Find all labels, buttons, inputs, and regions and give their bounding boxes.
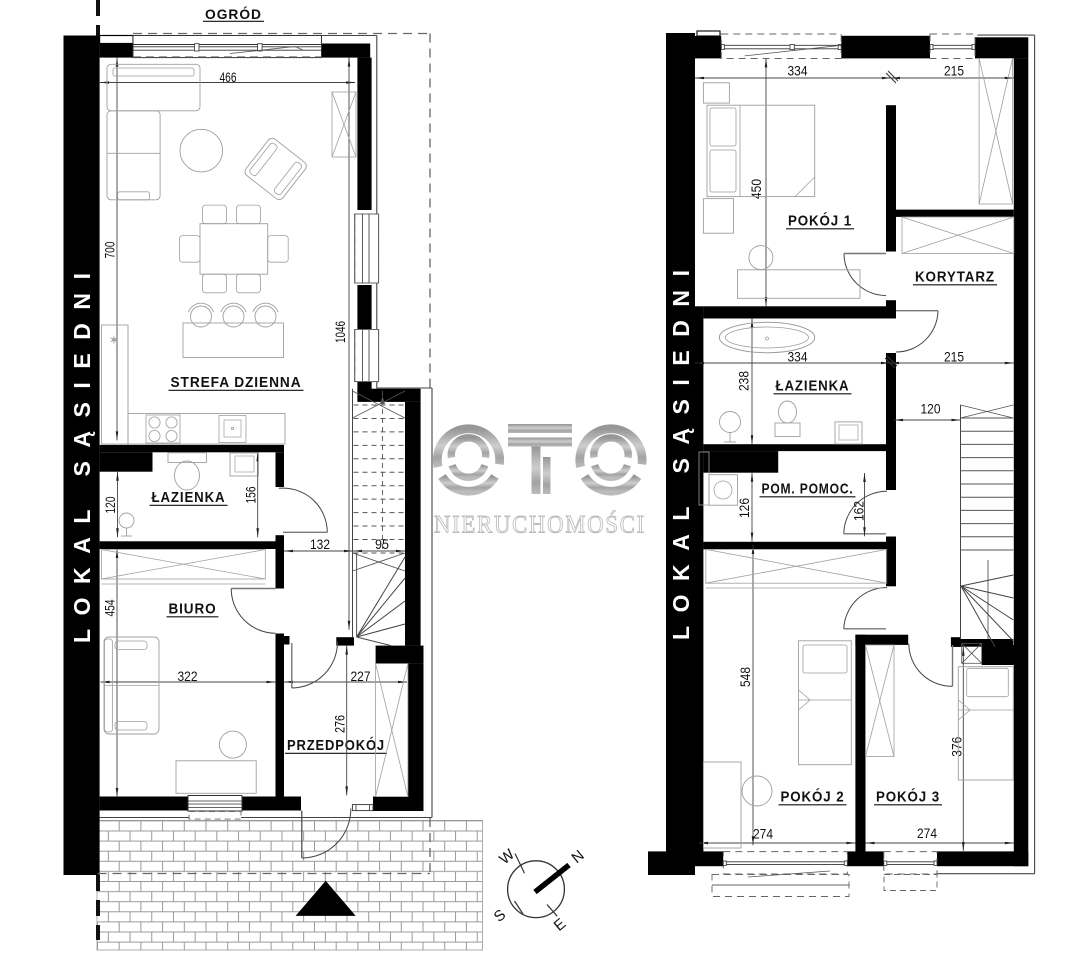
svg-text:454: 454 — [103, 599, 118, 616]
svg-text:162: 162 — [852, 501, 867, 521]
svg-text:95: 95 — [375, 537, 389, 552]
svg-text:132: 132 — [310, 537, 330, 552]
svg-text:466: 466 — [220, 70, 237, 85]
svg-text:POKÓJ 3: POKÓJ 3 — [876, 788, 940, 806]
svg-text:156: 156 — [244, 487, 259, 504]
svg-text:PRZEDPOKÓJ: PRZEDPOKÓJ — [287, 736, 385, 754]
svg-text:ŁAZIENKA: ŁAZIENKA — [776, 378, 850, 395]
svg-text:276: 276 — [333, 715, 348, 733]
svg-text:322: 322 — [178, 669, 198, 684]
svg-text:227: 227 — [351, 669, 371, 684]
svg-text:334: 334 — [788, 350, 808, 365]
svg-text:548: 548 — [738, 667, 753, 687]
svg-text:BIURO: BIURO — [169, 601, 217, 618]
svg-text:274: 274 — [917, 826, 937, 841]
svg-text:✶: ✶ — [109, 333, 120, 348]
svg-text:ŁAZIENKA: ŁAZIENKA — [152, 489, 226, 506]
svg-text:KORYTARZ: KORYTARZ — [915, 269, 995, 286]
svg-text:376: 376 — [950, 737, 965, 757]
svg-text:274: 274 — [753, 827, 773, 842]
svg-text:POKÓJ 1: POKÓJ 1 — [788, 212, 852, 230]
svg-text:334: 334 — [788, 64, 808, 79]
svg-text:120: 120 — [921, 402, 941, 417]
svg-text:700: 700 — [103, 242, 118, 259]
svg-text:120: 120 — [103, 497, 118, 514]
svg-text:STREFA DZIENNA: STREFA DZIENNA — [171, 374, 302, 391]
svg-text:238: 238 — [737, 371, 752, 391]
svg-text:450: 450 — [749, 179, 764, 199]
svg-text:126: 126 — [737, 498, 752, 518]
svg-text:POKÓJ 2: POKÓJ 2 — [781, 788, 845, 806]
svg-text:1046: 1046 — [333, 321, 348, 343]
svg-text:OGRÓD: OGRÓD — [205, 5, 262, 22]
svg-text:NIERUCHOMOŚCI: NIERUCHOMOŚCI — [434, 510, 646, 539]
svg-text:POM. POMOC.: POM. POMOC. — [762, 481, 854, 498]
svg-text:215: 215 — [944, 350, 964, 365]
svg-text:215: 215 — [944, 64, 964, 79]
